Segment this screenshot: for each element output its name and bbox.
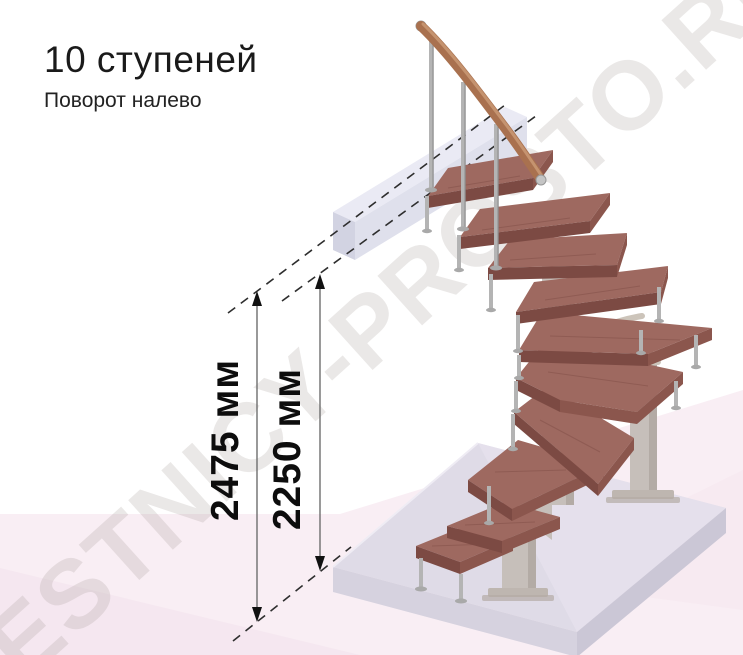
dimension-label-2475: 2475 мм xyxy=(204,359,247,521)
step-leg xyxy=(419,558,423,588)
handrail-end-cap xyxy=(536,175,546,185)
central-column-base-flange xyxy=(482,595,554,601)
title-block: 10 ступеней Поворот налево xyxy=(44,40,258,113)
page-subtitle: Поворот налево xyxy=(44,89,258,113)
staircase-diagram-page: LESTNICY-PROSTO.RU 2475 мм 2250 мм xyxy=(0,0,743,655)
page-title: 10 ступеней xyxy=(44,40,258,81)
right-column-base-flange xyxy=(606,497,680,503)
leg-foot xyxy=(415,587,427,592)
leg-foot xyxy=(455,599,467,604)
dimension-label-2250: 2250 мм xyxy=(266,368,309,530)
step-leg xyxy=(459,574,463,600)
